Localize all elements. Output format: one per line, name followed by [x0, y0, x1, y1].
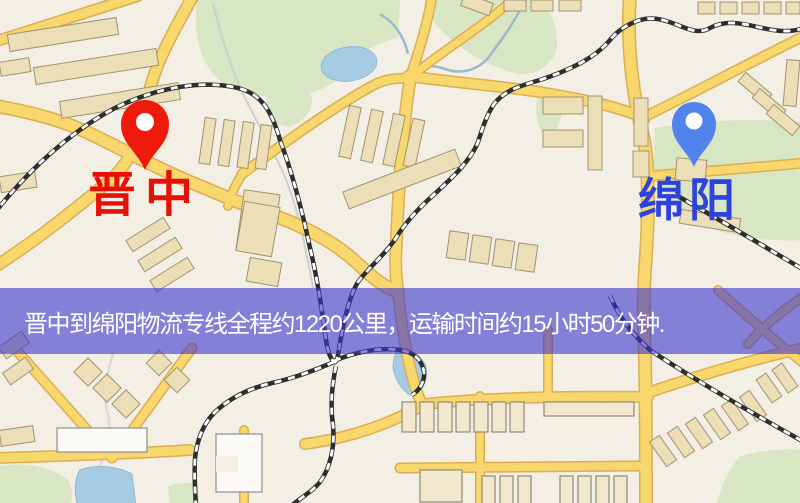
route-info-text: 晋中到绵阳物流专线全程约1220公里，运输时间约15小时50分钟. — [24, 304, 664, 339]
route-info-banner: 晋中到绵阳物流专线全程约1220公里，运输时间约15小时50分钟. — [0, 288, 800, 354]
map-canvas[interactable] — [0, 0, 800, 503]
destination-city-label: 绵阳 — [638, 177, 740, 223]
map-screenshot: 晋中到绵阳物流专线全程约1220公里，运输时间约15小时50分钟. 晋中 绵阳 — [0, 0, 800, 503]
origin-city-label: 晋中 — [88, 172, 202, 220]
